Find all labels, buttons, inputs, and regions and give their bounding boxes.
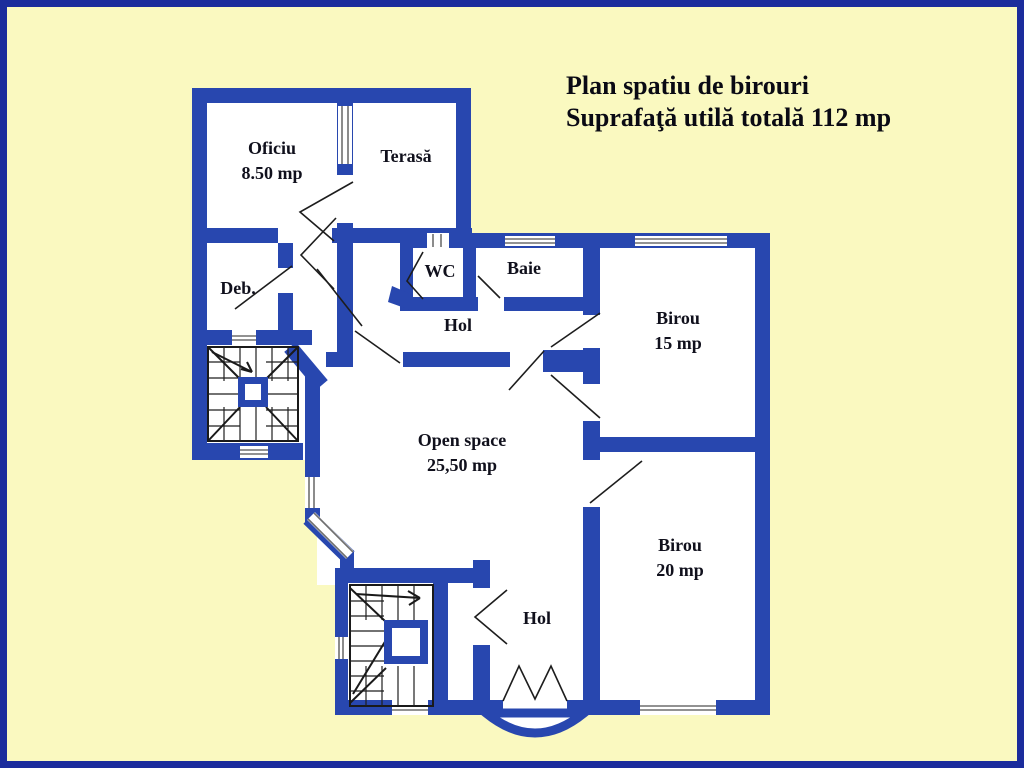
entrance-step-arc [486,713,584,733]
room-label-wc: WC [425,259,456,284]
room-label-birou15: Birou 15 mp [654,306,702,356]
window-deb-bottom [232,332,256,344]
window-birou20-bottom [640,702,716,715]
window-stair-upper-bottom [240,446,268,458]
room-label-hol-lower: Hol [523,606,551,631]
wall-hol-openspace [403,352,510,367]
plan-title: Plan spatiu de birouri Suprafaţă utilă t… [566,70,891,134]
wall-birou15-bottom [583,437,770,452]
room-label-birou20: Birou 20 mp [656,533,704,583]
window-above-baie [505,236,555,246]
wall-outer-left [192,88,207,460]
window-stair-lower-left [335,637,348,659]
wall-terasa-right [456,88,471,248]
plan-title-line1: Plan spatiu de birouri [566,70,891,102]
wall-outer-right [755,233,770,715]
room-label-debara: Deb. [220,276,256,301]
room-label-baie: Baie [507,256,541,281]
window-above-wc [427,233,449,248]
plan-title-line2: Suprafaţă utilă totală 112 mp [566,102,891,134]
room-label-hol-upper: Hol [444,313,472,338]
room-label-oficiu: Oficiu 8.50 mp [241,136,302,186]
window-oficiu-terasa [338,106,352,164]
window-above-birou15 [635,236,727,246]
wall-top-left-block [192,88,471,103]
window-openspace-left [305,477,320,508]
room-label-open-space: Open space 25,50 mp [418,428,507,478]
floor-plan-stage: Plan spatiu de birouri Suprafaţă utilă t… [0,0,1024,768]
room-label-terasa: Terasă [380,144,431,169]
wall-openspace-bottom [335,568,490,583]
